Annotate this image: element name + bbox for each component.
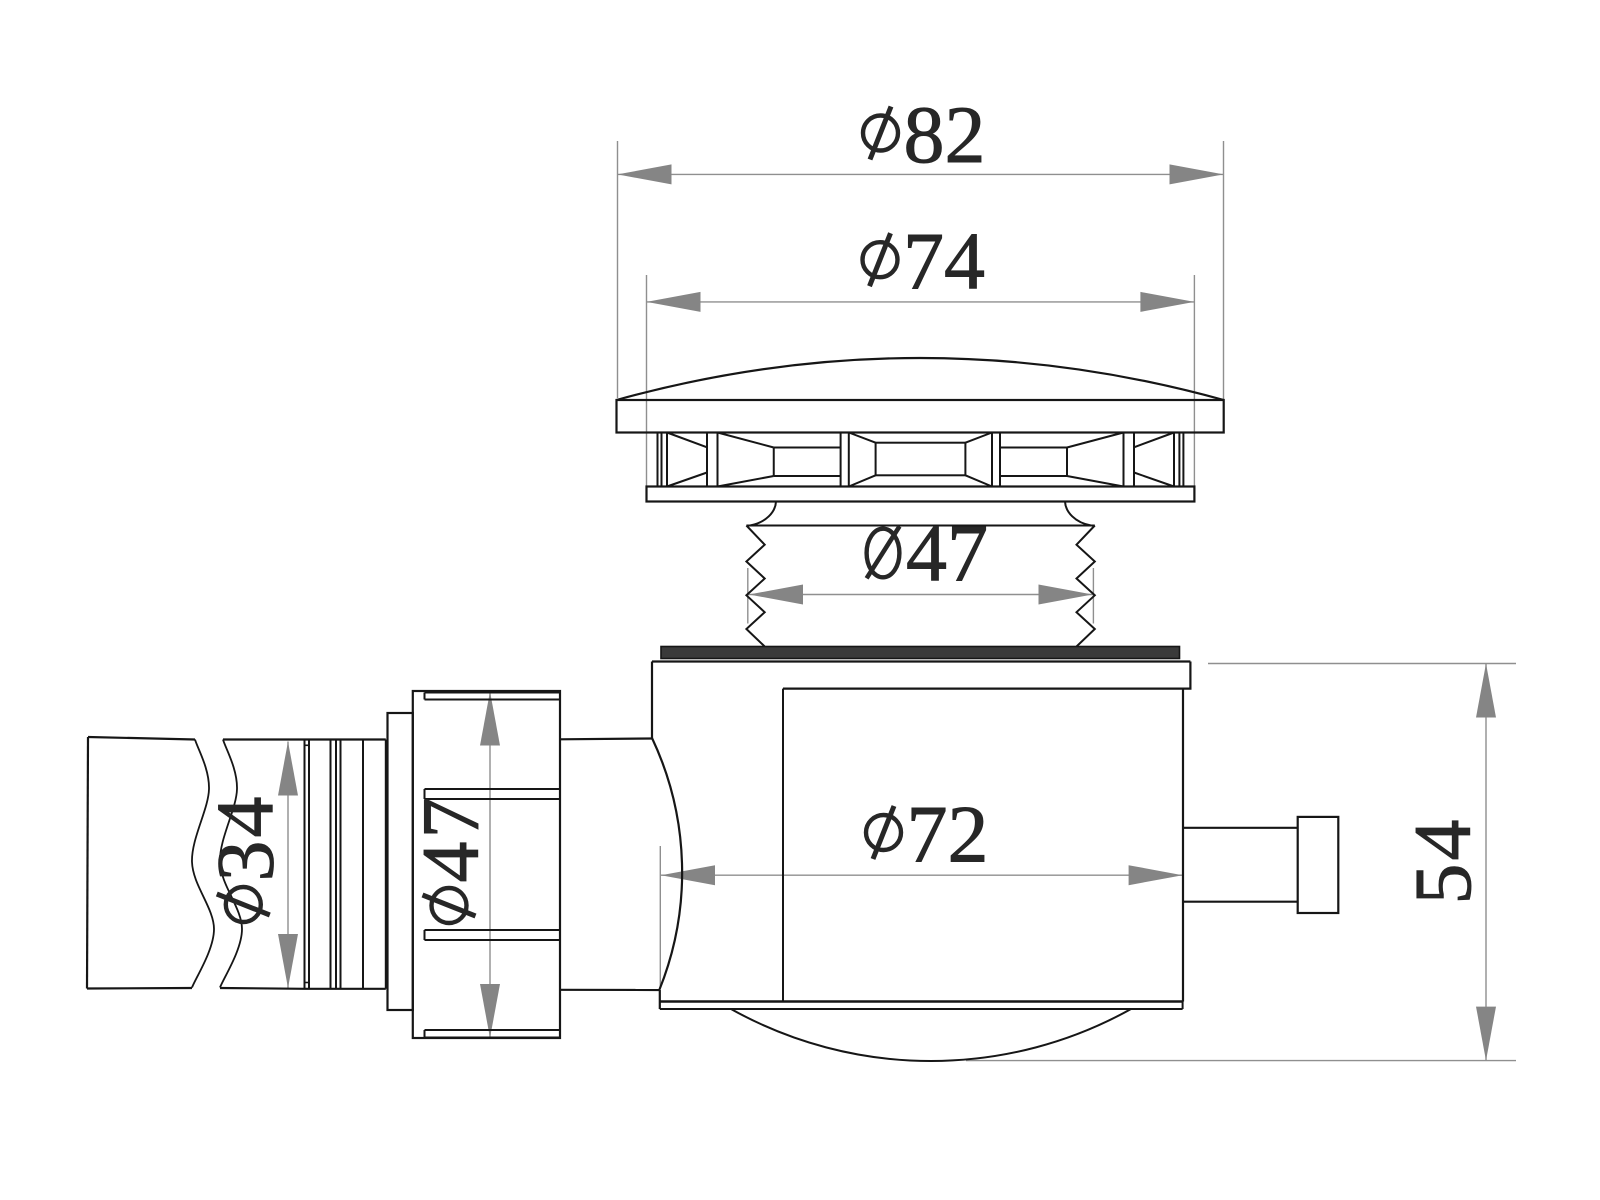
- svg-text:54: 54: [1397, 817, 1488, 905]
- svg-text:72: 72: [907, 789, 989, 880]
- svg-text:82: 82: [904, 89, 986, 180]
- svg-text:47: 47: [405, 795, 496, 883]
- svg-text:47: 47: [906, 508, 988, 599]
- svg-text:34: 34: [199, 794, 290, 882]
- svg-text:74: 74: [903, 216, 985, 307]
